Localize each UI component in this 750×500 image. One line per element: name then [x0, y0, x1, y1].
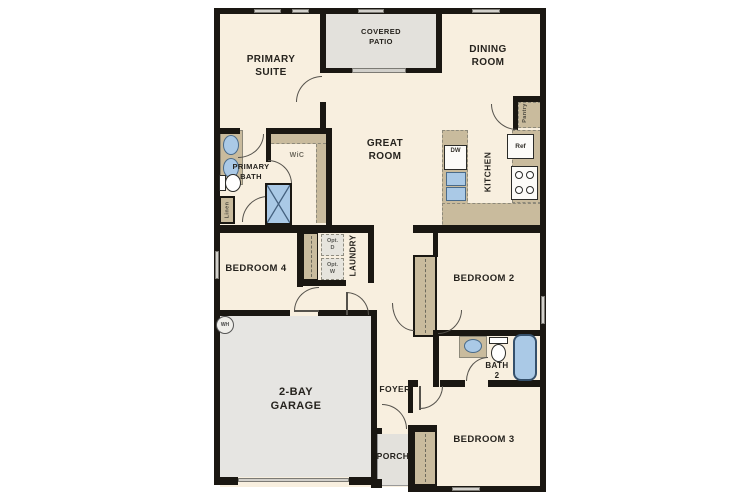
room-label-primary-bath: PRIMARY BATH — [219, 162, 283, 182]
dishwasher: DW — [444, 145, 467, 170]
wall-segment — [440, 380, 465, 387]
room-label-dining-room: DINING ROOM — [438, 43, 538, 69]
room-label-porch: PORCH — [367, 451, 419, 462]
window — [472, 9, 500, 13]
room-label-garage: 2-BAY GARAGE — [246, 385, 346, 414]
wall-segment — [371, 479, 382, 488]
wall-segment — [214, 8, 220, 485]
closet-dash — [425, 259, 426, 333]
window — [292, 9, 309, 13]
wall-segment — [433, 225, 438, 257]
bath-sink-icon — [223, 135, 239, 155]
room-label-bedroom3: BEDROOM 3 — [434, 434, 534, 446]
room-label-bedroom4: BEDROOM 4 — [206, 263, 306, 275]
wall-segment — [540, 8, 546, 492]
garage-door — [238, 478, 349, 482]
window — [358, 9, 384, 13]
door-leaf — [346, 292, 348, 315]
floor-plan: DW Ref Linen WH Opt. D Opt. W PRIMARY SU… — [0, 0, 750, 500]
window — [452, 487, 480, 491]
wall-segment — [326, 128, 332, 228]
patio-slider-door — [352, 68, 406, 73]
wall-segment — [371, 428, 382, 434]
wall-segment — [368, 233, 374, 283]
room-label-bedroom2: BEDROOM 2 — [434, 273, 534, 285]
wall-segment — [214, 128, 240, 134]
room-label-wic: WiC — [277, 151, 317, 160]
water-heater-icon: WH — [216, 316, 234, 334]
burner-icon — [515, 186, 523, 194]
room-label-kitchen: KITCHEN — [469, 140, 505, 204]
closet-dash — [311, 236, 312, 277]
burner-icon — [515, 171, 523, 179]
wall-segment — [266, 134, 271, 162]
toilet-icon — [491, 344, 506, 362]
window — [254, 9, 281, 13]
dishwasher-label: DW — [451, 148, 461, 154]
toilet-icon — [489, 337, 508, 344]
wall-segment — [266, 128, 326, 134]
burner-icon — [526, 186, 534, 194]
sink-basin — [446, 172, 466, 186]
room-label-laundry: LAUNDRY — [340, 226, 366, 284]
room-label-primary-suite: PRIMARY SUITE — [221, 53, 321, 79]
wic-shelf-top — [266, 134, 326, 144]
bath2-sink-icon — [464, 339, 482, 353]
room-label-foyer: FOYER — [369, 384, 421, 395]
door-leaf — [294, 310, 319, 312]
room-label-covered-patio: COVERED PATIO — [331, 27, 431, 47]
room-label-pantry: Pantry — [512, 97, 537, 129]
bedroom2-closet — [413, 255, 437, 337]
closet-dash — [425, 434, 426, 482]
wall-segment — [297, 233, 303, 287]
kitchen-sink — [446, 172, 466, 202]
room-label-great-room: GREAT ROOM — [335, 137, 435, 163]
wall-segment — [433, 330, 439, 387]
wic-shelf-right — [316, 144, 326, 223]
room-label-bath2: BATH 2 — [479, 361, 515, 382]
refrigerator-label: Ref — [515, 143, 525, 150]
burner-icon — [526, 171, 534, 179]
wall-segment — [214, 477, 238, 485]
shower-icon — [265, 183, 292, 225]
window — [541, 296, 545, 324]
room-label-linen: Linen — [218, 196, 236, 224]
bathtub-icon — [513, 334, 537, 381]
sink-basin — [446, 187, 466, 201]
refrigerator: Ref — [507, 134, 534, 159]
stove-icon — [511, 166, 538, 200]
